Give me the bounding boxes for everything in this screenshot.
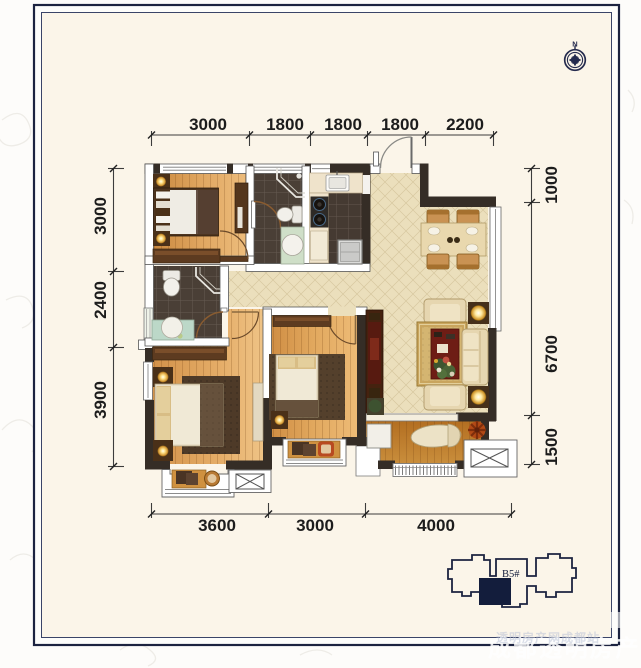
svg-text:2400: 2400 xyxy=(91,281,110,319)
svg-text:3000: 3000 xyxy=(91,197,110,235)
svg-text:1800: 1800 xyxy=(381,115,419,134)
svg-text:1800: 1800 xyxy=(266,115,304,134)
svg-text:B5#: B5# xyxy=(502,569,520,580)
svg-text:透明房产网成都站: 透明房产网成都站 xyxy=(496,630,600,645)
svg-text:2200: 2200 xyxy=(446,115,484,134)
svg-text:3000: 3000 xyxy=(189,115,227,134)
svg-text:6700: 6700 xyxy=(542,335,561,373)
svg-text:3000: 3000 xyxy=(296,516,334,535)
svg-text:1500: 1500 xyxy=(542,428,561,466)
svg-text:1000: 1000 xyxy=(542,166,561,204)
svg-text:3900: 3900 xyxy=(91,381,110,419)
svg-text:1800: 1800 xyxy=(324,115,362,134)
svg-text:4000: 4000 xyxy=(417,516,455,535)
svg-text:3600: 3600 xyxy=(198,516,236,535)
svg-text:N: N xyxy=(572,40,577,49)
